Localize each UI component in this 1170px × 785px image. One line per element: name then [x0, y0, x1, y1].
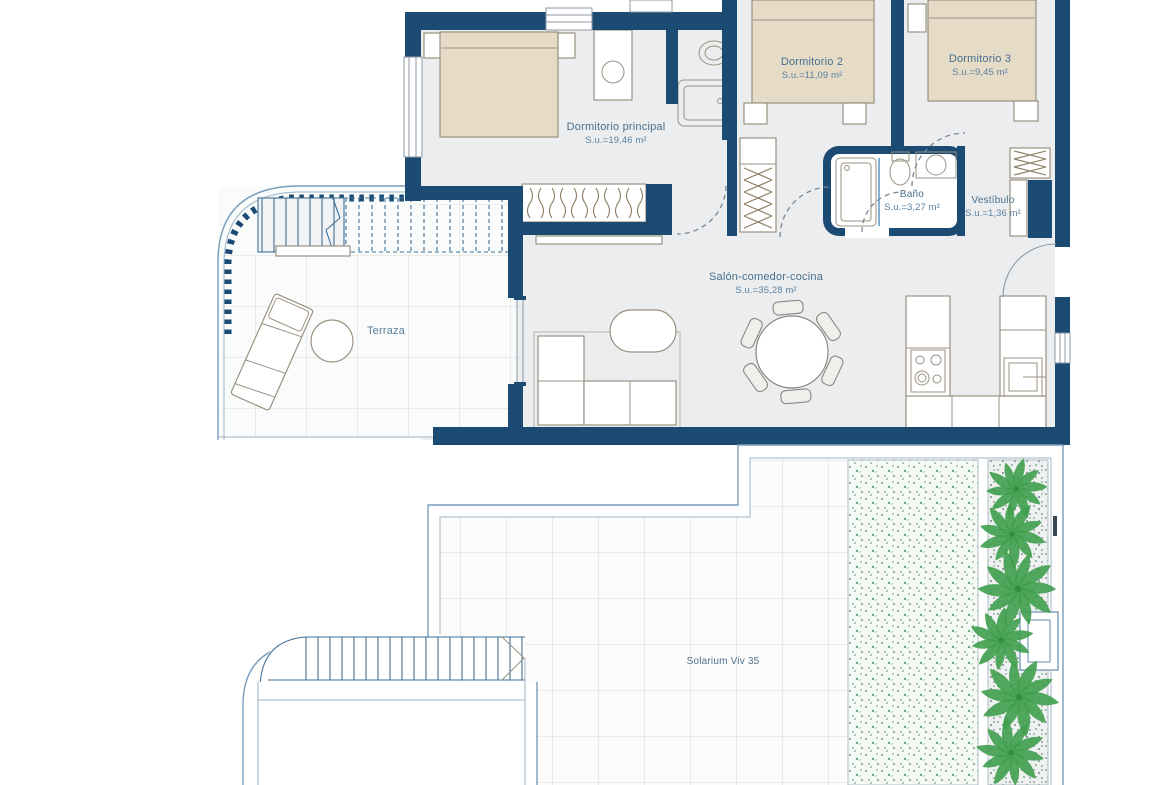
room-area: S.u.=19,46 m²: [567, 135, 666, 147]
terraza-side-table: [311, 320, 353, 362]
upper-apartment-plan: [218, 0, 1070, 445]
floor-plan-canvas: Dormitorio principal S.u.=19,46 m² Dormi…: [0, 0, 1170, 785]
label-dormitorio-principal: Dormitorio principal S.u.=19,46 m²: [567, 121, 666, 147]
label-salon: Salón-comedor-cocina S.u.=35,28 m²: [709, 271, 823, 297]
label-terraza: Terraza: [367, 325, 405, 339]
room-area: S.u.=1,36 m²: [965, 207, 1021, 219]
room-area: S.u.=11,09 m²: [781, 70, 843, 82]
floor-plan-drawing: [0, 0, 1170, 785]
stair-landing: [276, 246, 350, 256]
coffee-table: [610, 310, 676, 352]
room-area: S.u.=3,27 m²: [884, 201, 940, 213]
room-name: Vestíbulo: [965, 195, 1021, 208]
bed-principal: [424, 32, 575, 137]
room-name: Solarium Viv 35: [687, 656, 760, 669]
room-name: Baño: [884, 189, 940, 202]
label-solarium: Solarium Viv 35: [687, 656, 760, 669]
label-dormitorio-2: Dormitorio 2 S.u.=11,09 m²: [781, 56, 843, 82]
closet-dorm2: [740, 138, 776, 232]
closet-vestibulo: [1010, 148, 1052, 238]
room-name: Terraza: [367, 325, 405, 339]
label-bano: Baño S.u.=3,27 m²: [884, 189, 940, 213]
terraza-area: [218, 186, 517, 440]
room-name: Dormitorio 3: [949, 53, 1011, 67]
gravel-bed-wide: [848, 460, 978, 785]
room-name: Dormitorio principal: [567, 121, 666, 135]
label-vestibulo: Vestíbulo S.u.=1,36 m²: [965, 195, 1021, 219]
room-name: Salón-comedor-cocina: [709, 271, 823, 285]
room-area: S.u.=35,28 m²: [709, 285, 823, 297]
label-dormitorio-3: Dormitorio 3 S.u.=9,45 m²: [949, 53, 1011, 79]
planter-box: [1020, 612, 1058, 670]
lower-solarium-plan: [243, 445, 1076, 785]
room-name: Dormitorio 2: [781, 56, 843, 70]
room-area: S.u.=9,45 m²: [949, 67, 1011, 79]
